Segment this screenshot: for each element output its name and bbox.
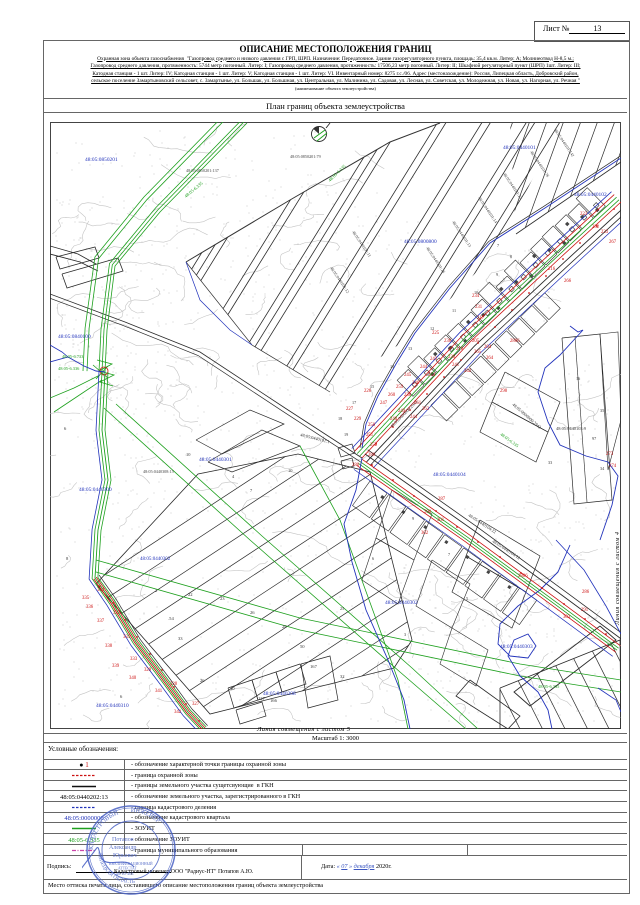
- svg-text:205: 205: [472, 339, 480, 344]
- svg-text:16: 16: [576, 376, 580, 381]
- svg-text:КВАЛИФИКАЦИОННЫЙ: КВАЛИФИКАЦИОННЫЙ: [109, 861, 153, 866]
- svg-text:127: 127: [258, 696, 266, 701]
- svg-text:10: 10: [186, 452, 191, 457]
- svg-text:233: 233: [601, 230, 609, 235]
- svg-text:35: 35: [600, 408, 604, 413]
- svg-text:48:05:0000000:2942: 48:05:0000000:2942: [511, 402, 542, 430]
- svg-text:48:05:0440308:15: 48:05:0440308:15: [143, 469, 174, 474]
- svg-text:267: 267: [609, 240, 617, 245]
- svg-text:341: 341: [155, 689, 163, 694]
- svg-text:7: 7: [448, 552, 450, 557]
- svg-text:48:05:0440103:9: 48:05:0440103:9: [556, 426, 587, 431]
- svg-text:5: 5: [466, 596, 468, 601]
- svg-text:216: 216: [548, 267, 556, 272]
- svg-text:48:05:0440303: 48:05:0440303: [500, 644, 533, 650]
- svg-text:28: 28: [282, 624, 287, 629]
- svg-text:245: 245: [404, 373, 412, 378]
- svg-text:48:05:0440308: 48:05:0440308: [263, 691, 296, 697]
- svg-text:227: 227: [346, 407, 354, 412]
- svg-text:218: 218: [456, 347, 464, 352]
- svg-text:338: 338: [105, 644, 113, 649]
- svg-text:248: 248: [390, 417, 398, 422]
- svg-text:48:05:0850201:79: 48:05:0850201:79: [290, 154, 321, 159]
- svg-text:50: 50: [300, 644, 305, 649]
- svg-text:336: 336: [86, 605, 94, 610]
- svg-text:6: 6: [372, 556, 374, 561]
- svg-text:234: 234: [472, 294, 480, 299]
- svg-text:334: 334: [97, 588, 105, 593]
- svg-text:273: 273: [606, 452, 614, 457]
- svg-text:48:05:0440102: 48:05:0440102: [574, 192, 607, 198]
- svg-text:48:05:0440302: 48:05:0440302: [140, 557, 171, 562]
- svg-text:7: 7: [250, 488, 253, 493]
- svg-text:217: 217: [477, 316, 485, 321]
- svg-text:303: 303: [563, 615, 571, 620]
- svg-text:48:05:0850201: 48:05:0850201: [85, 157, 118, 163]
- svg-text:97: 97: [592, 436, 596, 441]
- svg-text:302: 302: [421, 531, 429, 536]
- svg-text:48:05-6.335: 48:05-6.335: [183, 180, 204, 199]
- svg-text:18: 18: [338, 416, 342, 421]
- svg-text:280: 280: [352, 463, 360, 468]
- svg-text:328: 328: [170, 682, 178, 687]
- svg-text:262: 262: [422, 407, 430, 412]
- svg-text:226: 226: [364, 389, 372, 394]
- svg-text:17: 17: [352, 400, 356, 405]
- svg-text:9: 9: [496, 272, 498, 277]
- svg-text:286: 286: [582, 590, 590, 595]
- svg-text:287: 287: [438, 497, 446, 502]
- svg-text:167: 167: [310, 664, 318, 669]
- svg-text:250: 250: [368, 423, 376, 428]
- svg-text:339: 339: [112, 664, 120, 669]
- svg-text:301: 301: [437, 518, 445, 523]
- svg-text:48:05:0800800: 48:05:0800800: [404, 239, 437, 245]
- svg-text:48:05:0840100: 48:05:0840100: [58, 334, 91, 340]
- svg-text:7: 7: [497, 243, 499, 248]
- svg-text:230: 230: [448, 355, 456, 360]
- svg-text:236: 236: [444, 339, 452, 344]
- svg-text:261: 261: [414, 401, 422, 406]
- svg-text:48:05-6.335: 48:05-6.335: [327, 163, 347, 183]
- svg-text:243: 243: [430, 357, 438, 362]
- svg-text:34: 34: [600, 466, 605, 471]
- svg-text:225: 225: [432, 331, 440, 336]
- svg-text:2806: 2806: [510, 339, 520, 344]
- svg-text:9: 9: [412, 516, 414, 521]
- svg-text:232: 232: [592, 225, 600, 230]
- svg-text:13: 13: [408, 346, 412, 351]
- svg-text:231: 231: [475, 305, 483, 310]
- svg-text:48:05-6.335: 48:05-6.335: [538, 684, 560, 689]
- svg-text:298: 298: [500, 389, 508, 394]
- svg-text:48-10-463: 48-10-463: [116, 871, 133, 876]
- svg-text:48:05:0440101:142: 48:05:0440101:142: [553, 128, 575, 158]
- svg-text:Александр: Александр: [109, 845, 136, 851]
- svg-text:48:05:0440101:26: 48:05:0440101:26: [425, 246, 446, 274]
- svg-text:Юрьевич: Юрьевич: [113, 853, 137, 859]
- svg-text:48:05:0440301: 48:05:0440301: [199, 457, 232, 463]
- svg-text:48:05-6.335: 48:05-6.335: [499, 432, 520, 449]
- svg-text:.54: .54: [168, 616, 174, 621]
- svg-text:251: 251: [366, 433, 374, 438]
- svg-text:331: 331: [123, 635, 131, 640]
- svg-text:335: 335: [82, 596, 90, 601]
- svg-text:4: 4: [232, 474, 235, 479]
- svg-text:244: 244: [420, 365, 428, 370]
- svg-text:166: 166: [270, 698, 278, 703]
- svg-text:48:05:0440302: 48:05:0440302: [385, 600, 418, 606]
- svg-text:246: 246: [412, 381, 420, 386]
- svg-text:340: 340: [129, 676, 137, 681]
- svg-text:247: 247: [380, 401, 388, 406]
- svg-text:333: 333: [130, 657, 138, 662]
- svg-text:8: 8: [510, 254, 512, 259]
- svg-text:48:05-6.733: 48:05-6.733: [62, 354, 84, 359]
- svg-text:249: 249: [398, 409, 406, 414]
- svg-text:332: 332: [113, 611, 121, 616]
- svg-text:290: 290: [424, 510, 432, 515]
- svg-text:274: 274: [609, 464, 617, 469]
- svg-text:266: 266: [564, 279, 572, 284]
- svg-text:3: 3: [404, 632, 406, 637]
- svg-text:26: 26: [200, 678, 205, 683]
- svg-text:АТТЕСТАТ: АТТЕСТАТ: [118, 867, 137, 871]
- svg-text:22: 22: [188, 592, 193, 597]
- svg-text:265: 265: [474, 350, 482, 355]
- svg-text:48:05:0440101:11: 48:05:0440101:11: [351, 230, 372, 258]
- svg-text:26: 26: [250, 610, 255, 615]
- svg-text:Потапов: Потапов: [112, 837, 134, 843]
- svg-text:33: 33: [548, 460, 552, 465]
- svg-text:327: 327: [192, 702, 200, 707]
- svg-text:33: 33: [178, 636, 183, 641]
- svg-text:48:05:0850201:137: 48:05:0850201:137: [186, 168, 219, 173]
- svg-text:238: 238: [404, 393, 412, 398]
- svg-text:259: 259: [396, 385, 404, 390]
- svg-text:329: 329: [144, 668, 152, 673]
- svg-text:11: 11: [452, 308, 456, 313]
- svg-text:32: 32: [340, 674, 345, 679]
- svg-text:244: 244: [410, 415, 418, 420]
- svg-text:25: 25: [340, 606, 344, 611]
- svg-text:288: 288: [368, 453, 376, 458]
- svg-text:291: 291: [581, 608, 589, 613]
- svg-text:264: 264: [486, 356, 494, 361]
- svg-text:8: 8: [66, 556, 69, 561]
- svg-text:242: 242: [464, 369, 472, 374]
- svg-text:48:05-6.336: 48:05-6.336: [58, 366, 80, 371]
- svg-text:342: 342: [174, 710, 182, 715]
- svg-text:2806: 2806: [518, 574, 528, 579]
- svg-text:229: 229: [354, 417, 362, 422]
- svg-text:223: 223: [580, 212, 588, 217]
- svg-text:6: 6: [64, 426, 67, 431]
- svg-text:48:05:0440101:13: 48:05:0440101:13: [451, 220, 472, 248]
- svg-text:48:05:0440104: 48:05:0440104: [433, 472, 466, 478]
- svg-text:48:05:0440300: 48:05:0440300: [79, 487, 112, 493]
- svg-text:337: 337: [97, 619, 105, 624]
- svg-text:204: 204: [484, 345, 492, 350]
- svg-text:241: 241: [452, 363, 460, 368]
- svg-text:19: 19: [344, 432, 348, 437]
- svg-text:6: 6: [120, 694, 123, 699]
- svg-text:23: 23: [220, 596, 225, 601]
- svg-text:254: 254: [428, 373, 436, 378]
- svg-text:260: 260: [388, 393, 396, 398]
- svg-text:48:05:0440310: 48:05:0440310: [96, 703, 129, 709]
- svg-text:40: 40: [230, 686, 235, 691]
- svg-text:48:05:0440101: 48:05:0440101: [503, 145, 536, 151]
- svg-text:252: 252: [370, 443, 378, 448]
- svg-text:2: 2: [155, 588, 158, 593]
